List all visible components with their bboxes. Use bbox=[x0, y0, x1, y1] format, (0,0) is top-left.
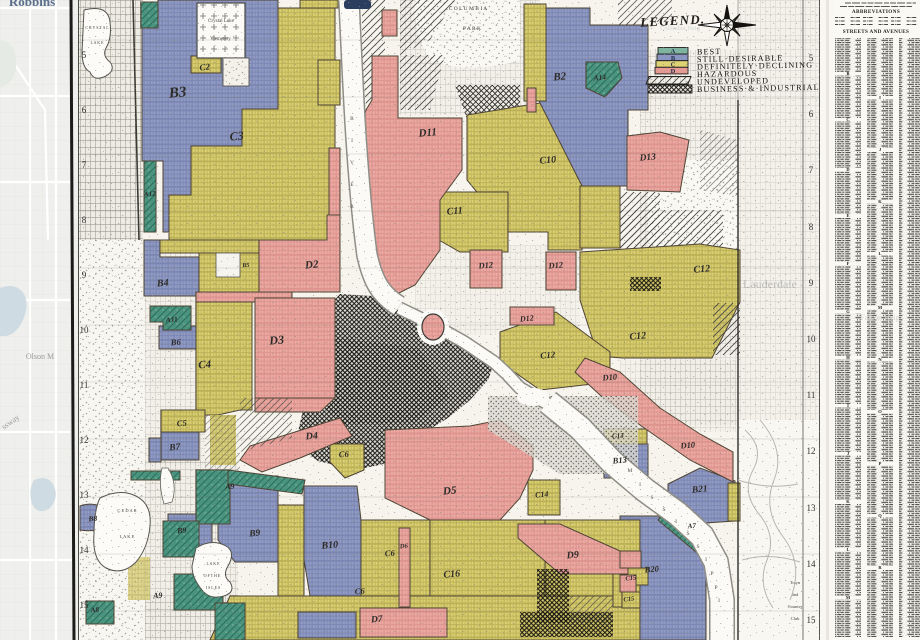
svg-text:C: C bbox=[846, 117, 849, 122]
svg-text:Q: Q bbox=[878, 513, 882, 518]
svg-text:K: K bbox=[846, 499, 850, 504]
svg-text:K: K bbox=[878, 199, 882, 204]
svg-text:STREETS AND AVENUES: STREETS AND AVENUES bbox=[843, 29, 909, 35]
svg-text:L: L bbox=[846, 547, 849, 552]
svg-text:E: E bbox=[846, 213, 849, 218]
svg-text:ABBREVIATIONS: ABBREVIATIONS bbox=[852, 9, 900, 15]
svg-text:P: P bbox=[879, 461, 882, 466]
svg-text:G: G bbox=[846, 309, 850, 314]
svg-text:B: B bbox=[846, 71, 849, 76]
svg-text:I: I bbox=[847, 403, 849, 408]
svg-text:I: I bbox=[879, 95, 881, 100]
svg-text:F: F bbox=[847, 261, 850, 266]
svg-text:Olson M: Olson M bbox=[26, 352, 54, 361]
svg-text:L: L bbox=[878, 251, 881, 256]
svg-text:O: O bbox=[878, 409, 882, 414]
svg-text:H: H bbox=[846, 355, 850, 360]
svg-text:Falcon Heig: Falcon Heig bbox=[860, 313, 899, 322]
svg-text:Robbins: Robbins bbox=[9, 0, 55, 9]
